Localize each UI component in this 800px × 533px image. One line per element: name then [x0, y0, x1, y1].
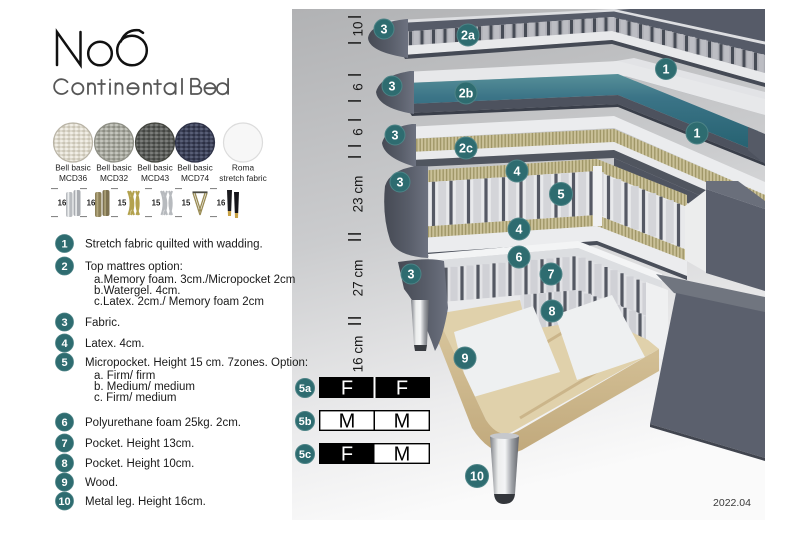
svg-text:10: 10: [470, 470, 484, 484]
svg-text:Bell basic: Bell basic: [96, 163, 132, 173]
svg-text:MCD36: MCD36: [59, 173, 88, 183]
svg-text:Micropocket. Height 15 cm. 7zo: Micropocket. Height 15 cm. 7zones. Optio…: [85, 357, 308, 369]
svg-text:5: 5: [61, 357, 67, 369]
svg-text:5: 5: [557, 187, 564, 202]
svg-text:Latex. 4cm.: Latex. 4cm.: [85, 338, 144, 350]
svg-text:15: 15: [118, 199, 127, 208]
svg-text:2: 2: [61, 261, 67, 273]
svg-text:4: 4: [514, 165, 521, 179]
svg-text:F: F: [341, 444, 353, 466]
svg-text:Polyurethane foam 25kg. 2cm.: Polyurethane foam 25kg. 2cm.: [85, 417, 241, 429]
svg-text:1: 1: [61, 239, 67, 251]
svg-text:Metal leg. Height 16cm.: Metal leg. Height 16cm.: [85, 496, 206, 508]
svg-text:c. Firm/ medium: c. Firm/ medium: [94, 392, 176, 404]
svg-text:Stretch fabric quilted with wa: Stretch fabric quilted with wadding.: [85, 239, 263, 251]
svg-text:16: 16: [58, 199, 67, 208]
svg-text:Pocket. Height 13cm.: Pocket. Height 13cm.: [85, 438, 194, 450]
svg-text:6: 6: [516, 251, 523, 265]
svg-text:16: 16: [217, 199, 226, 208]
svg-text:5a: 5a: [299, 383, 312, 395]
svg-text:Pocket. Height 10cm.: Pocket. Height 10cm.: [85, 458, 194, 470]
svg-text:9: 9: [462, 352, 469, 366]
svg-text:10: 10: [351, 21, 366, 36]
svg-text:Bell basic: Bell basic: [177, 163, 213, 173]
svg-text:6: 6: [351, 128, 366, 136]
svg-text:8: 8: [61, 458, 67, 470]
svg-text:2c: 2c: [459, 142, 473, 156]
svg-text:5c: 5c: [299, 449, 311, 461]
svg-text:4: 4: [516, 223, 523, 237]
svg-text:3: 3: [392, 129, 399, 143]
svg-text:16 cm: 16 cm: [351, 336, 366, 373]
svg-text:Top mattres option:: Top mattres option:: [85, 261, 183, 273]
svg-text:MCD32: MCD32: [100, 173, 129, 183]
svg-text:15: 15: [152, 199, 161, 208]
svg-text:6: 6: [351, 83, 366, 91]
svg-text:9: 9: [61, 477, 67, 489]
svg-text:27 cm: 27 cm: [351, 260, 366, 297]
svg-text:7: 7: [548, 268, 555, 282]
svg-text:M: M: [394, 444, 411, 466]
svg-text:2b: 2b: [459, 87, 474, 101]
svg-text:F: F: [396, 378, 408, 400]
svg-text:Bell basic: Bell basic: [55, 163, 91, 173]
svg-text:10: 10: [58, 496, 70, 508]
svg-text:M: M: [394, 411, 411, 433]
svg-text:2022.04: 2022.04: [713, 497, 751, 509]
svg-text:16: 16: [87, 199, 96, 208]
svg-text:MCD43: MCD43: [141, 173, 170, 183]
svg-text:Fabric.: Fabric.: [85, 317, 120, 329]
svg-text:c.Latex. 2cm./ Memory foam 2cm: c.Latex. 2cm./ Memory foam 2cm: [94, 296, 264, 308]
svg-text:2a: 2a: [461, 29, 476, 43]
svg-text:Wood.: Wood.: [85, 477, 118, 489]
svg-text:4: 4: [61, 338, 68, 350]
svg-text:1: 1: [663, 63, 670, 77]
svg-text:15: 15: [182, 199, 191, 208]
svg-text:3: 3: [61, 317, 67, 329]
svg-text:M: M: [339, 411, 356, 433]
svg-text:7: 7: [61, 438, 67, 450]
svg-text:3: 3: [389, 80, 396, 94]
svg-text:Bell basic: Bell basic: [137, 163, 173, 173]
svg-text:3: 3: [408, 268, 415, 282]
svg-text:3: 3: [381, 23, 388, 37]
svg-text:8: 8: [549, 305, 556, 319]
svg-text:Roma: Roma: [232, 163, 255, 173]
svg-text:1: 1: [694, 127, 701, 141]
svg-text:MCD74: MCD74: [181, 173, 210, 183]
svg-text:23 cm: 23 cm: [351, 176, 366, 213]
svg-text:6: 6: [61, 417, 67, 429]
svg-text:3: 3: [397, 176, 404, 190]
svg-text:stretch fabric: stretch fabric: [219, 173, 267, 183]
svg-text:F: F: [341, 378, 353, 400]
svg-text:5b: 5b: [299, 416, 312, 428]
